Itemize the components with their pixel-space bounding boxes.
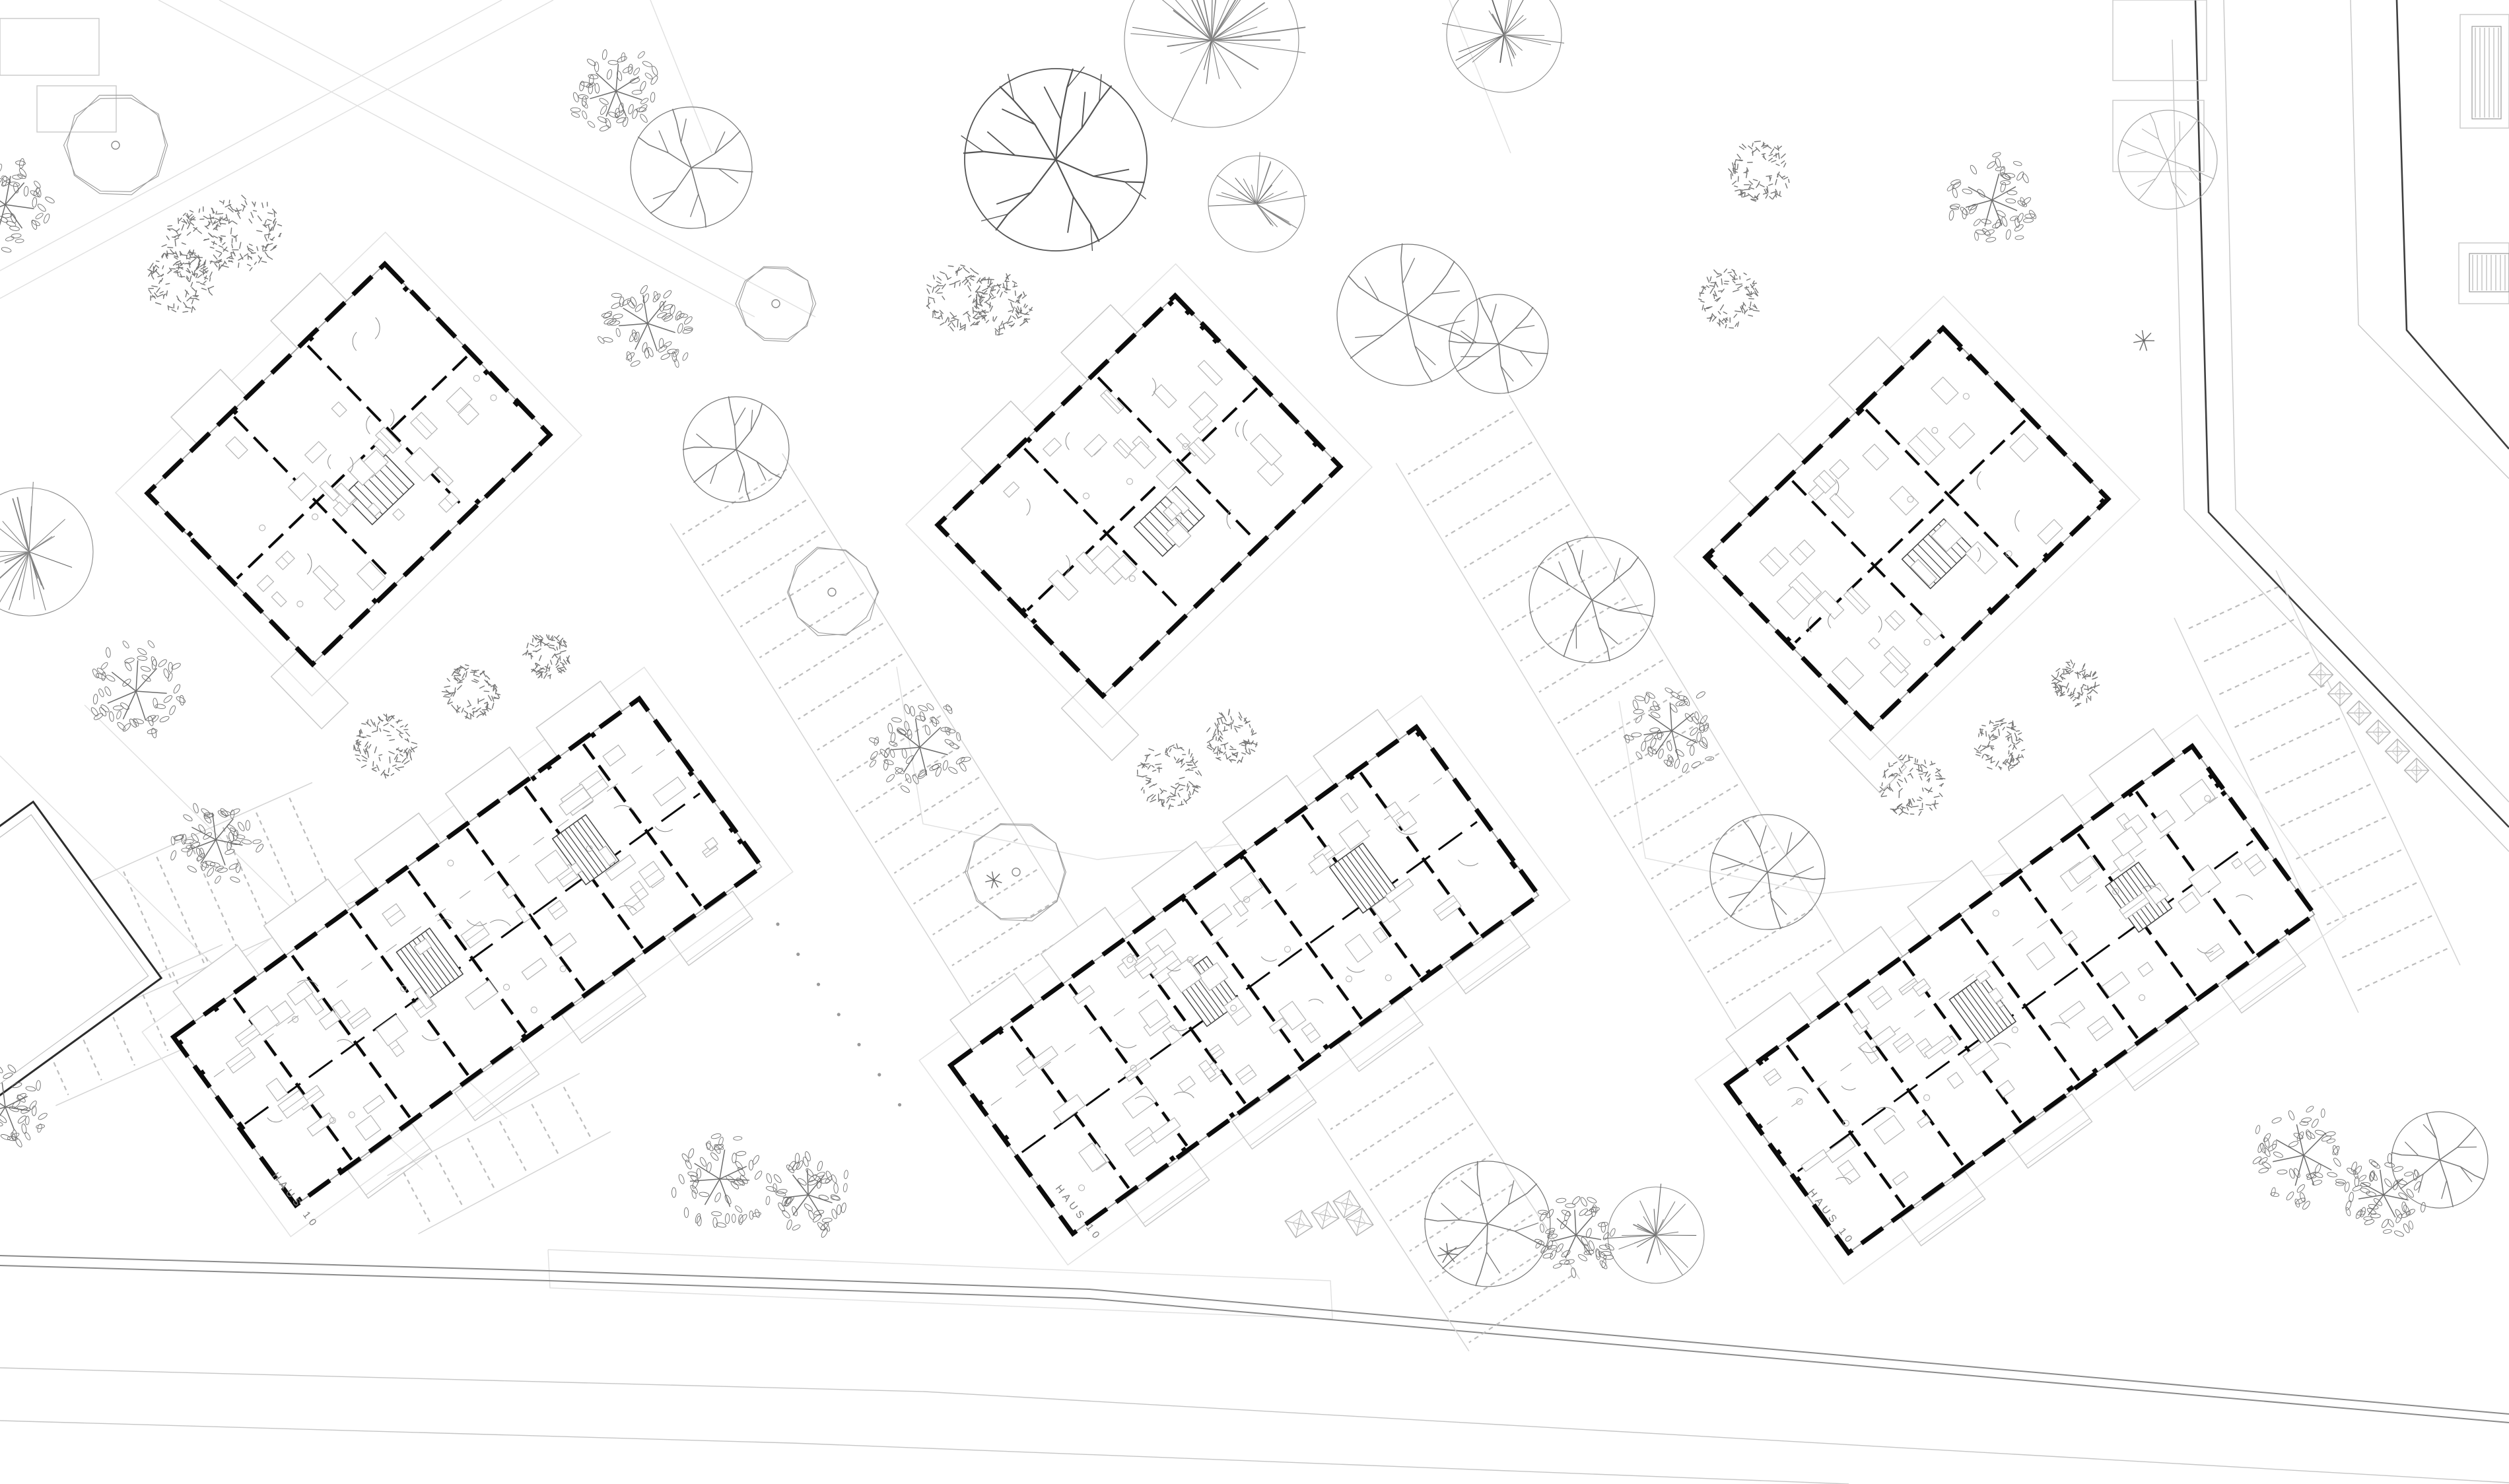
street-curb-line: [0, 1265, 2509, 1423]
hatched-structure: [2469, 253, 2509, 292]
plant-sprout-icon: [2133, 330, 2154, 351]
neighbor-building-frame: [2459, 243, 2509, 304]
boundary-dot: [776, 922, 779, 926]
boundary-dot: [837, 1013, 841, 1016]
boundary-dot: [877, 1073, 881, 1076]
tree-leafy-icon: [671, 1133, 773, 1228]
building-tower-east: [1651, 285, 2161, 793]
street-edge-line: [0, 1421, 1849, 1484]
tree-radial-icon: [1603, 1184, 1704, 1283]
tree-branched-icon: [631, 107, 753, 228]
footpath-line: [219, 0, 815, 317]
street-edge-line: [0, 1368, 2509, 1483]
shrub-icon: [1729, 141, 1789, 201]
plant-sprout-icon: [1437, 1243, 1459, 1263]
shrub-icon: [1207, 709, 1257, 763]
tree-branched-icon: [961, 67, 1147, 251]
boundary-dot: [857, 1043, 860, 1046]
tree-branched-icon: [1424, 1161, 1550, 1287]
tree-radial-icon: [1124, 0, 1305, 127]
hatched-structure: [2472, 26, 2501, 119]
shrub-icon: [442, 665, 500, 719]
road-sidewalk-line: [2172, 40, 2509, 852]
tree-leafy-icon: [0, 153, 55, 253]
site-plan-drawing: HAUS 10 HAUS 10 HAUS 10: [0, 0, 2509, 1484]
tree-branched-icon: [2118, 110, 2217, 209]
building-haus10-east: [1686, 703, 2354, 1296]
planter-box: [1285, 1210, 1312, 1237]
tree-leafy-icon: [765, 1151, 848, 1238]
road-layer: [0, 0, 2509, 1484]
tree-radial-icon: [0, 482, 93, 616]
tree-radial-icon: [1208, 152, 1307, 252]
tree-radial-icon: [1442, 0, 1564, 92]
shrub-icon: [926, 265, 995, 331]
boundary-dot: [796, 953, 800, 956]
planter-box: [2347, 701, 2372, 725]
site-plan-canvas: HAUS 10 HAUS 10 HAUS 10: [0, 0, 2509, 1484]
tree-leafy-icon: [570, 50, 659, 132]
building-layer: [93, 221, 2354, 1296]
shrub-icon: [354, 714, 417, 778]
shrub-icon: [1137, 744, 1202, 809]
boundary-dot: [817, 983, 820, 986]
tree-young-icon: [736, 267, 815, 342]
tree-young-icon: [787, 547, 878, 636]
shrub-icon: [148, 250, 214, 313]
building-tower-middle: [883, 253, 1393, 760]
planter-box: [2366, 720, 2391, 745]
tree-branched-icon: [1337, 244, 1478, 386]
shrub-icon: [1974, 719, 2024, 771]
boundary-dot: [898, 1103, 901, 1106]
planter-box: [2328, 682, 2353, 706]
shrub-icon: [523, 634, 570, 678]
building-haus10-west: [133, 656, 801, 1248]
road-sidewalk-line: [2224, 0, 2509, 802]
tree-leafy-icon: [597, 285, 693, 368]
tree-leafy-icon: [2252, 1105, 2357, 1211]
shrub-icon: [2051, 660, 2099, 707]
tree-leafy-icon: [1946, 152, 2038, 243]
tree-leafy-icon: [90, 640, 186, 738]
footpath-line: [0, 0, 553, 298]
shrub-icon: [1699, 269, 1760, 328]
tree-young-icon: [965, 824, 1066, 921]
tree-leafy-icon: [869, 702, 971, 793]
shrub-icon: [204, 195, 282, 271]
tree-branched-icon: [683, 396, 789, 502]
planter-box: [2309, 663, 2333, 687]
parking-strip: [1318, 1047, 1579, 1351]
neighbor-building-frame: [37, 86, 116, 132]
tree-branched-icon: [1449, 294, 1548, 393]
tree-leafy-icon: [170, 803, 264, 884]
shrub-icon: [1879, 755, 1945, 816]
planter-box: [2405, 759, 2429, 783]
tree-leafy-icon: [1624, 687, 1714, 773]
neighbor-building-frame: [2113, 0, 2207, 81]
building-haus10-middle: [911, 684, 1578, 1277]
tree-young-icon: [64, 95, 168, 195]
road-sidewalk-line: [2351, 0, 2509, 479]
neighbor-building-outline: [0, 802, 161, 1172]
footpath-line: [650, 0, 712, 153]
tree-branched-icon: [2391, 1112, 2488, 1208]
neighbor-building-frame: [0, 18, 99, 75]
plant-sprout-icon: [985, 871, 1002, 888]
tree-leafy-icon: [2344, 1153, 2426, 1237]
road-curb-line: [2195, 0, 2509, 827]
footpath-line: [158, 0, 755, 317]
tree-branched-icon: [1710, 815, 1826, 929]
planter-box: [1311, 1201, 1338, 1229]
tree-leafy-icon: [1534, 1196, 1616, 1278]
footpath-line: [0, 0, 502, 271]
footpath-line: [1449, 0, 1511, 153]
